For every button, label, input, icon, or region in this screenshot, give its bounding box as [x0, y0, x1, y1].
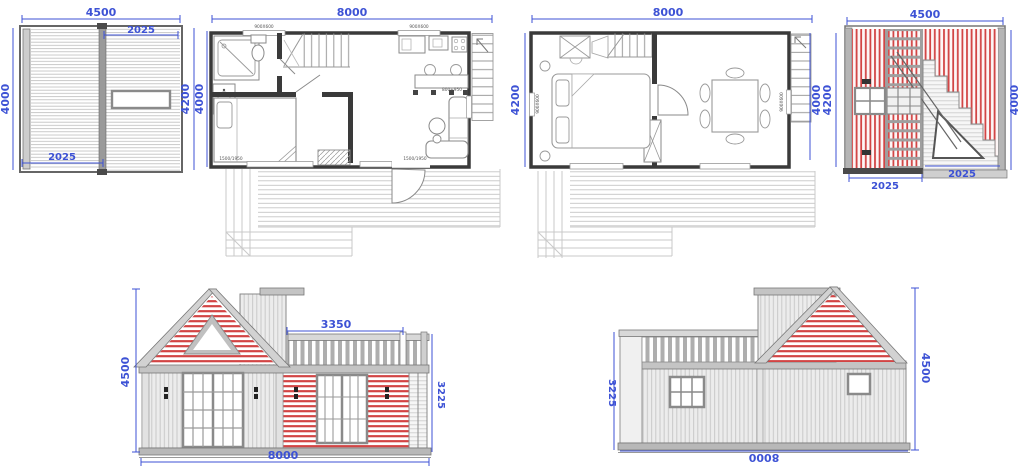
bar-stool [451, 65, 462, 76]
floor1-right-door [467, 96, 472, 118]
bedroom-wall-left [211, 92, 296, 97]
kitchen-units [399, 36, 467, 53]
deck-2 [570, 171, 815, 227]
section-base-left [843, 168, 923, 174]
roof-plan-divider [99, 26, 106, 172]
nightstand [540, 151, 550, 161]
french-door-1 [183, 373, 243, 447]
floor2-window-left [530, 93, 535, 116]
dim-roof-bottom-left: 2025 [48, 152, 76, 163]
section-left-wall [845, 28, 852, 172]
floor1-window-bottom-right [360, 162, 392, 168]
toilet [252, 45, 264, 61]
interior-door-arc [658, 85, 688, 115]
rear-ground-line [618, 443, 910, 450]
chair [760, 110, 770, 128]
dim-roof-top: 4500 [86, 6, 117, 19]
floor1-window-top-right [398, 31, 440, 36]
roof-plan-left-panel [31, 29, 99, 169]
dim-roof-top-right: 2025 [127, 25, 155, 36]
dining-set [700, 68, 770, 144]
floor2-window-bottom-right [700, 164, 750, 170]
dim-section-right: 4000 [1008, 84, 1021, 115]
dim-roof-left: 4000 [0, 83, 12, 114]
mid-wall-upper [652, 33, 657, 84]
exterior-stairs [472, 34, 493, 121]
french-door-2 [317, 375, 367, 443]
floor-plan-1: 900X600 900X600 [211, 6, 500, 256]
deck [258, 169, 500, 227]
dim-front-balcony: 3350 [321, 318, 352, 331]
dim-rear-bottom: 8000 [748, 451, 779, 464]
dim-floor2-left: 4200 [509, 84, 522, 115]
dim-front-bottom: 8000 [268, 449, 299, 462]
coffee-table [429, 118, 445, 134]
kitchen-sink [429, 36, 448, 50]
chair [726, 134, 744, 144]
interior-steps [318, 150, 350, 165]
floor1-window-bottom-left [247, 162, 313, 168]
wardrobe-door [592, 36, 608, 58]
corner-post [620, 332, 642, 443]
pillow [556, 117, 569, 143]
chair [760, 84, 770, 102]
double-bed [552, 74, 650, 148]
label-window-top-right: 900X600 [409, 24, 429, 30]
wall-lamp [294, 387, 298, 392]
section-right-wall [998, 28, 1005, 172]
dim-section-top: 4500 [910, 8, 941, 21]
wall-lamp [164, 387, 168, 392]
chair [700, 84, 710, 102]
dim-roof-right-outer: 4200 [179, 83, 192, 114]
floor2-window-bottom-left [570, 164, 623, 170]
window-6pane [670, 377, 704, 407]
pillow [217, 102, 232, 128]
dim-front-left: 4500 [119, 356, 132, 387]
dim-floor1-top: 8000 [337, 6, 368, 19]
pillow [556, 80, 569, 106]
wall-lamp [385, 387, 389, 392]
toilet-tank [251, 35, 266, 43]
stove [452, 37, 467, 52]
label-floor2-window-left: 900X600 [535, 94, 541, 114]
dim-floor2-top: 8000 [653, 6, 684, 19]
section-window-mid [887, 88, 921, 114]
divider-cap-top [97, 23, 107, 29]
chair [726, 68, 744, 78]
dim-section-bottom-left: 2025 [871, 181, 899, 192]
dim-rear-left: 3225 [606, 379, 617, 407]
roof-plan-window [112, 91, 170, 108]
dim-rear-right: 4500 [919, 353, 932, 384]
front-elevation: 4500 3350 3225 8000 [119, 288, 446, 466]
staircase-2 [607, 34, 652, 58]
label-door-right: 800+950 [442, 87, 462, 93]
wall-lamp [254, 387, 258, 392]
exterior-stairs-2 [791, 34, 811, 122]
window-square [848, 374, 870, 394]
side-table [433, 135, 441, 143]
floor-plan-2: 900X600 900X600 8000 4200 4000 4200 [509, 6, 836, 258]
rear-elevation: 3225 4500 8000 [606, 287, 932, 464]
label-window-bottom-right: 1500/1950 [403, 156, 427, 162]
label-floor2-window-right: 900X600 [779, 92, 785, 112]
latch-mark [862, 150, 871, 155]
dim-floor2-right-outer: 4200 [821, 84, 834, 115]
tower-cap [260, 288, 304, 295]
bath-wall-upper [277, 33, 282, 59]
stair-section: 4500 4000 2025 2025 [843, 8, 1021, 192]
dim-roof-right-inner: 4000 [193, 83, 206, 114]
single-bed [214, 98, 296, 162]
architectural-drawing-sheet: 4500 2025 4000 2025 4200 4000 900X600 90… [0, 0, 1024, 476]
staircase [283, 34, 350, 68]
label-window-top-left: 900X600 [254, 24, 274, 30]
dining-table [712, 80, 758, 132]
divider-cap-bottom [97, 169, 107, 175]
balcony-railing [282, 332, 429, 368]
drawing-canvas: 4500 2025 4000 2025 4200 4000 900X600 90… [0, 0, 1024, 476]
wardrobe [560, 36, 608, 64]
dim-section-bottom-mid: 2025 [948, 169, 976, 180]
nightstand [540, 61, 550, 71]
fridge [399, 36, 425, 53]
bar-stool [425, 65, 436, 76]
label-window-bottom-left: 1500/1950 [219, 156, 243, 162]
roof-plan-left-wall [23, 29, 30, 169]
bedroom-door [296, 75, 320, 92]
dim-front-right: 3225 [435, 381, 446, 409]
latch-mark [862, 79, 871, 84]
roof-plan: 4500 2025 4000 2025 4200 4000 [0, 6, 207, 175]
chair [700, 110, 710, 128]
